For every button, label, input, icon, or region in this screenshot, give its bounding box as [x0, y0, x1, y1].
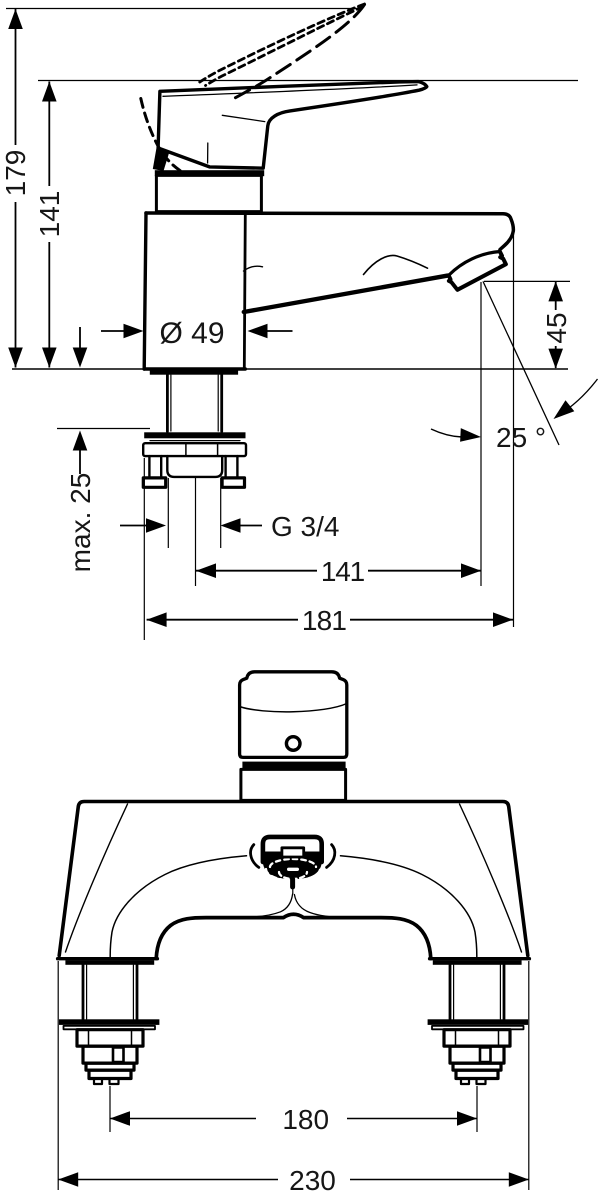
svg-text:25 °: 25 °: [496, 422, 546, 453]
svg-text:141: 141: [321, 556, 365, 587]
svg-text:179: 179: [0, 150, 31, 197]
svg-text:Ø 49: Ø 49: [159, 317, 224, 350]
svg-text:180: 180: [282, 1104, 329, 1135]
svg-text:45: 45: [541, 312, 572, 343]
svg-text:max. 25: max. 25: [65, 473, 96, 573]
svg-text:G 3/4: G 3/4: [271, 511, 339, 542]
svg-text:141: 141: [34, 191, 65, 238]
svg-text:181: 181: [302, 605, 347, 636]
svg-text:230: 230: [289, 1165, 336, 1196]
